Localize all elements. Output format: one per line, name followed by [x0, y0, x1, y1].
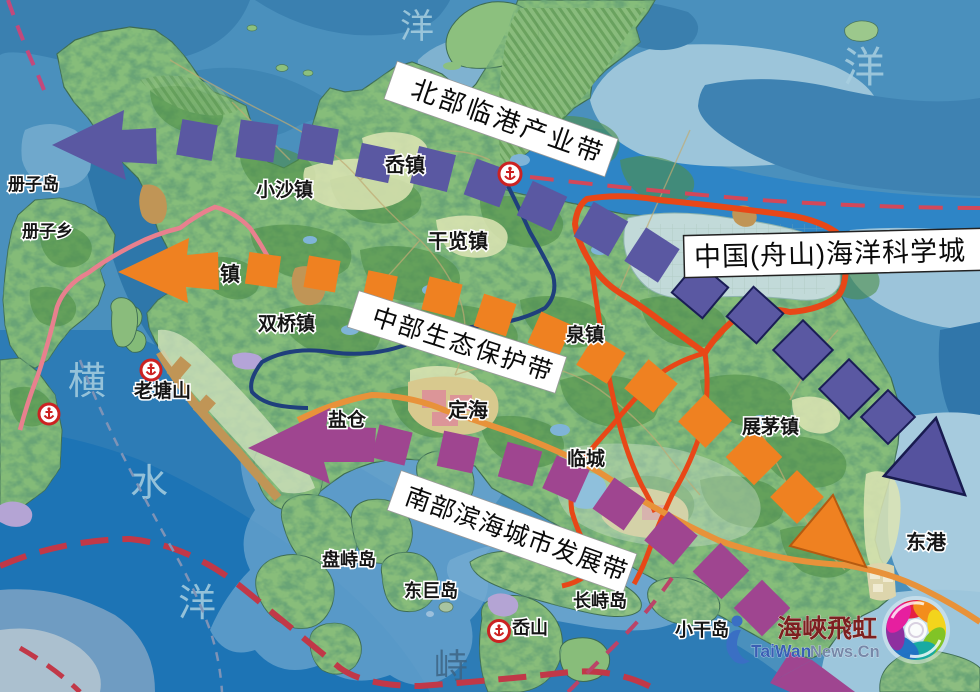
svg-text:册子岛: 册子岛 [8, 174, 59, 194]
svg-text:TaiWan: TaiWan [751, 641, 811, 661]
svg-text:老塘山: 老塘山 [134, 379, 191, 402]
svg-text:盘峙岛: 盘峙岛 [322, 549, 376, 570]
svg-text:定海: 定海 [448, 398, 488, 422]
svg-text:双桥镇: 双桥镇 [258, 312, 315, 335]
svg-text:干览镇: 干览镇 [428, 229, 488, 253]
svg-text:泉镇: 泉镇 [565, 323, 604, 346]
svg-text:镇: 镇 [220, 262, 240, 286]
svg-text:水: 水 [130, 463, 168, 505]
svg-text:东巨岛: 东巨岛 [404, 580, 458, 601]
svg-text:News.Cn: News.Cn [810, 643, 880, 661]
svg-text:册子乡: 册子乡 [22, 222, 73, 241]
svg-text:洋: 洋 [843, 44, 885, 91]
svg-text:小沙镇: 小沙镇 [256, 178, 313, 201]
svg-text:海峽飛虹: 海峽飛虹 [777, 614, 877, 643]
svg-text:横: 横 [68, 361, 106, 403]
svg-text:洋: 洋 [178, 583, 216, 625]
svg-text:展茅镇: 展茅镇 [742, 415, 799, 438]
svg-text:东港: 东港 [906, 530, 947, 554]
svg-text:洋: 洋 [400, 8, 434, 46]
svg-text:长峙岛: 长峙岛 [573, 590, 627, 611]
svg-text:盐仓: 盐仓 [328, 408, 367, 431]
svg-text:岙镇: 岙镇 [385, 153, 425, 177]
svg-text:小干岛: 小干岛 [675, 619, 729, 640]
svg-text:临城: 临城 [567, 447, 605, 470]
svg-text:岙山: 岙山 [512, 617, 548, 638]
